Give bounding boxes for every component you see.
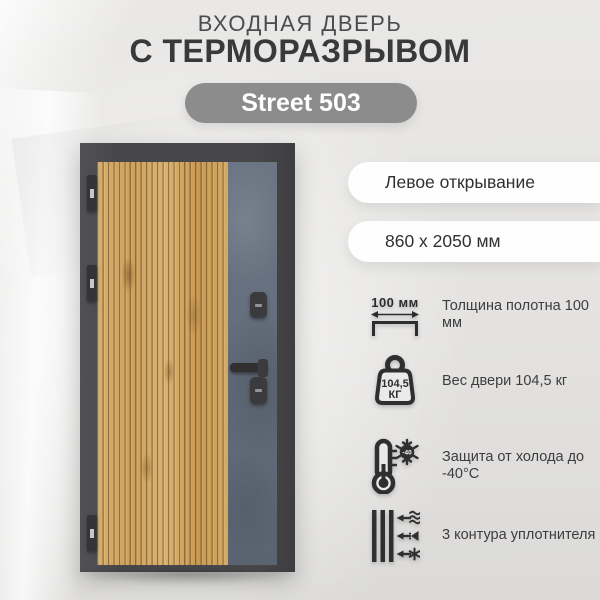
cold-snowflake-glyph bbox=[410, 549, 420, 560]
wind-glyph bbox=[408, 531, 419, 541]
door-hinge-middle bbox=[87, 265, 97, 301]
feature-frost-label: Защита от холода до -40°C bbox=[442, 449, 600, 484]
weight-unit: КГ bbox=[389, 389, 403, 401]
dimensions-label: 860 х 2050 мм bbox=[385, 231, 501, 252]
frost-icon: -40 bbox=[368, 438, 422, 494]
feature-weight-label: Вес двери 104,5 кг bbox=[442, 373, 567, 390]
door-image bbox=[80, 143, 295, 572]
feature-weight: 104,5 КГ Вес двери 104,5 кг bbox=[368, 354, 600, 410]
door-hinge-top bbox=[87, 175, 97, 211]
feature-thickness: 100 мм Толщина полотна 100 мм bbox=[368, 287, 600, 343]
dimensions-pill: 860 х 2050 мм bbox=[348, 221, 600, 262]
door-promo-banner: ВХОДНАЯ ДВЕРЬ С ТЕРМОРАЗРЫВОМ Street 503… bbox=[0, 0, 600, 600]
feature-frost: -40 Защита от холода до -40°C bbox=[368, 438, 600, 494]
door-wood-slats-panel bbox=[97, 162, 228, 565]
feature-seals-label: 3 контура уплотнителя bbox=[442, 527, 595, 544]
door-hinge-bottom bbox=[87, 515, 97, 551]
door-handle-rosette bbox=[258, 359, 268, 377]
door-lower-lock bbox=[250, 377, 267, 404]
thickness-icon-text: 100 мм bbox=[371, 295, 419, 310]
model-badge: Street 503 bbox=[185, 83, 417, 123]
opening-direction-pill: Левое открывание bbox=[348, 162, 600, 203]
door-section-bracket-icon bbox=[372, 321, 418, 336]
feature-seals: 3 контура уплотнителя bbox=[368, 508, 600, 564]
thickness-icon: 100 мм bbox=[368, 295, 422, 336]
banner-title: С ТЕРМОРАЗРЫВОМ bbox=[0, 33, 600, 70]
model-badge-label: Street 503 bbox=[241, 89, 361, 118]
opening-direction-label: Левое открывание bbox=[385, 172, 535, 193]
door-upper-lock bbox=[250, 292, 267, 318]
double-arrow-icon bbox=[371, 310, 419, 319]
feature-thickness-label: Толщина полотна 100 мм bbox=[442, 298, 600, 333]
weight-icon: 104,5 КГ bbox=[368, 355, 422, 409]
heat-waves-glyph bbox=[410, 512, 420, 524]
seals-icon bbox=[368, 510, 422, 562]
frost-temperature: -40 bbox=[402, 449, 412, 456]
